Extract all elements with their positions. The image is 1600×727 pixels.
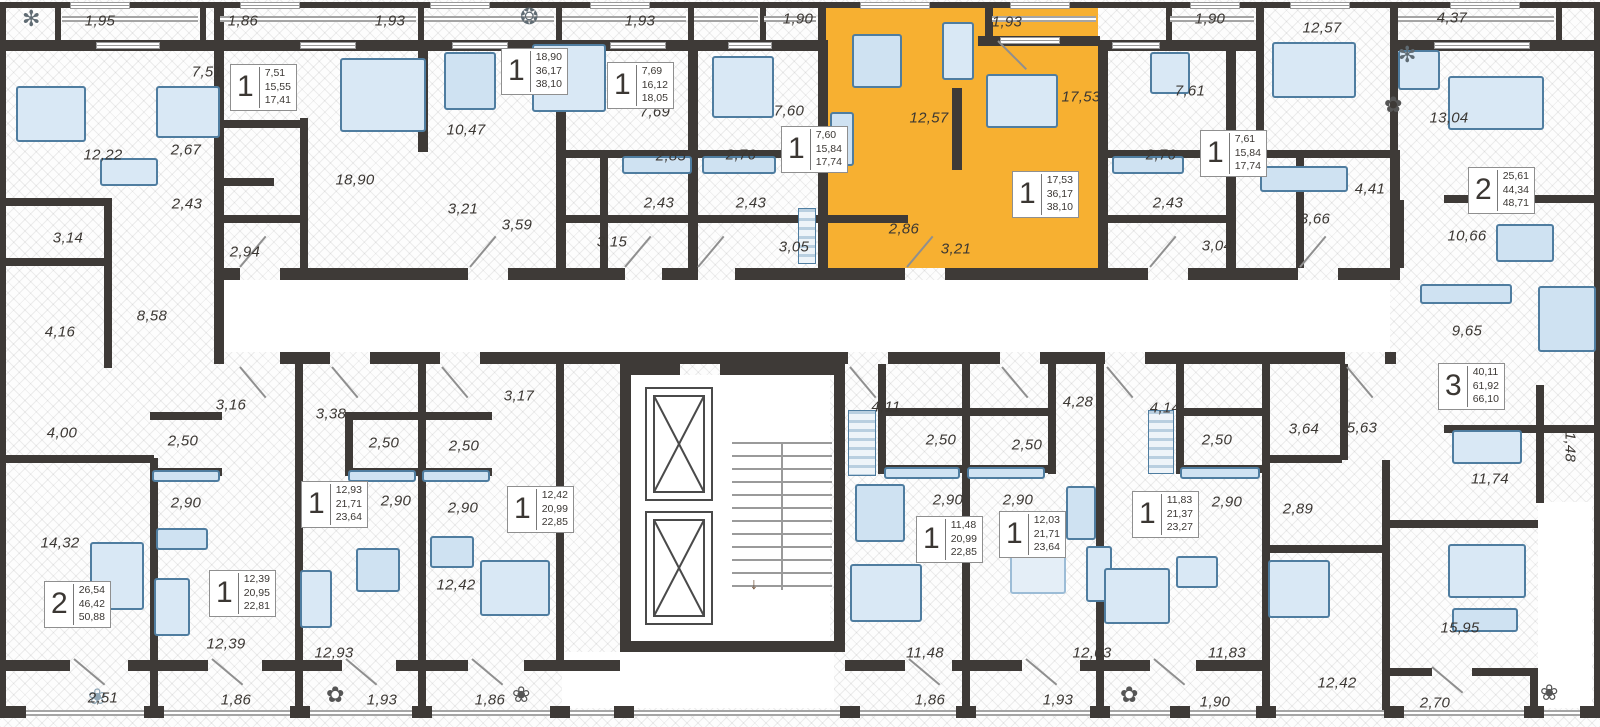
window	[1450, 2, 1520, 9]
window	[300, 42, 356, 49]
wall-segment	[1166, 40, 1258, 51]
unit-area-value: 20,99	[542, 503, 568, 517]
wall-segment	[1472, 668, 1530, 676]
room-area-label: 12,57	[1302, 20, 1341, 37]
room-area-label: 1,90	[1195, 11, 1225, 28]
room-area-label: 1,93	[992, 14, 1022, 31]
wall-segment	[224, 268, 240, 280]
unit-info-card: 226,5446,4250,88	[44, 581, 111, 628]
unit-areas: 11,4820,9922,85	[945, 519, 977, 560]
room-area-label: 11,48	[906, 645, 944, 662]
furniture	[154, 578, 190, 636]
room-area-label: 2,43	[736, 195, 766, 212]
window	[1010, 2, 1070, 9]
wall-stub	[956, 706, 976, 718]
room-area-label: 4,28	[1063, 394, 1093, 411]
wall-segment	[1188, 268, 1298, 280]
wall-segment	[1262, 455, 1342, 463]
wall-stub	[1524, 706, 1544, 718]
wall-segment	[1080, 660, 1150, 671]
window	[860, 2, 930, 9]
room-area-label: 2,51	[88, 690, 118, 707]
window	[96, 42, 160, 49]
furniture	[444, 52, 496, 110]
wall-segment	[214, 8, 224, 364]
unit-area-value: 22,85	[951, 546, 977, 560]
plant-icon: ✻	[22, 8, 40, 30]
wall-segment	[1166, 8, 1172, 42]
room-area-label: 10,47	[446, 122, 485, 139]
unit-info-card: 112,9321,7123,64	[301, 481, 368, 528]
furniture	[1448, 544, 1526, 598]
unit-info-card: 112,4220,9922,85	[507, 486, 574, 533]
wall-segment	[6, 455, 154, 463]
room-area-label: 17,53	[1061, 89, 1100, 106]
wall-segment	[878, 364, 886, 474]
wall-segment	[200, 8, 206, 42]
wall-segment	[1262, 364, 1270, 712]
room-area-label: 12,57	[909, 110, 948, 127]
room-area-label: 1,90	[783, 11, 813, 28]
room-area-label: 3,04	[1202, 238, 1232, 255]
wall-segment	[1108, 215, 1226, 223]
window	[1434, 42, 1530, 49]
room-area-label: 13,04	[1429, 110, 1468, 127]
wall-stub	[412, 706, 432, 718]
furniture	[1180, 467, 1260, 479]
room-area-label: 2,70	[1420, 695, 1450, 712]
wall-stub	[1384, 706, 1404, 718]
furniture	[942, 22, 974, 80]
unit-area-value: 11,83	[1167, 494, 1193, 508]
room-area-label: 12,03	[1072, 645, 1111, 662]
wall-segment	[600, 155, 608, 268]
wall-segment	[818, 8, 826, 42]
unit-info-card: 118,9036,1738,10	[501, 48, 568, 95]
furniture	[1066, 486, 1096, 540]
wall-segment	[6, 258, 110, 266]
unit-area-value: 12,03	[1034, 514, 1060, 528]
furniture	[430, 536, 474, 568]
unit-area-value: 7,61	[1235, 133, 1261, 147]
wall-stub	[614, 706, 634, 718]
room-area-label: 8,58	[137, 308, 167, 325]
window	[452, 42, 508, 49]
room-area-label: 3,21	[448, 201, 478, 218]
room-area-label: 3,64	[1289, 421, 1319, 438]
room-area-label: 12,39	[206, 636, 245, 653]
unit-area-value: 12,93	[336, 484, 362, 498]
wall-segment	[688, 40, 698, 268]
wall-segment	[128, 660, 208, 671]
wall-segment	[214, 120, 308, 128]
unit-rooms-count: 1	[216, 578, 233, 608]
room-area-label: 2,50	[1012, 437, 1042, 454]
unit-area-value: 12,39	[244, 573, 270, 587]
room-area-label: 2,43	[1153, 195, 1183, 212]
room-area-label: 9,65	[1452, 323, 1482, 340]
unit-areas: 7,6916,1218,05	[636, 65, 668, 106]
unit-area-value: 15,55	[265, 81, 291, 95]
unit-rooms-count: 1	[508, 56, 525, 86]
wall-segment	[6, 198, 110, 206]
room-area-label: 2,50	[369, 435, 399, 452]
room-area-label: 2,90	[171, 495, 201, 512]
window	[1290, 2, 1350, 9]
room-area-label: 15,95	[1440, 620, 1479, 637]
unit-rooms-count: 1	[614, 70, 631, 100]
furniture	[884, 467, 960, 479]
unit-areas: 12,3920,9522,81	[238, 573, 270, 614]
furniture	[1452, 430, 1522, 464]
furniture	[852, 34, 902, 88]
unit-area-value: 38,10	[1047, 201, 1073, 215]
wall-segment	[214, 215, 308, 223]
unit-area-value: 23,64	[1034, 541, 1060, 555]
room-area-label: 3,17	[504, 388, 534, 405]
room-area-label: 2,50	[449, 438, 479, 455]
wall-segment	[1536, 385, 1544, 503]
room-area-label: 1,86	[475, 692, 505, 709]
unit-areas: 7,5115,5517,41	[259, 67, 291, 108]
furniture	[1104, 568, 1170, 624]
furniture	[1420, 284, 1512, 304]
unit-area-value: 7,60	[816, 129, 842, 143]
wall-stub	[550, 706, 570, 718]
room-area-label: 4,16	[45, 324, 75, 341]
wall-segment	[556, 8, 562, 42]
unit-area-value: 61,92	[1473, 380, 1499, 394]
balcony-glazing	[1398, 16, 1554, 22]
furniture	[152, 470, 220, 482]
room-area-label: 1,86	[915, 692, 945, 709]
wall-stub	[1580, 706, 1600, 718]
wall-segment	[1396, 200, 1404, 268]
room-area-label: 2,76	[1146, 147, 1176, 164]
balcony-glazing	[62, 16, 198, 22]
unit-rooms-count: 1	[1139, 499, 1156, 529]
room-area-label: 2,94	[230, 244, 260, 261]
room-area-label: 11,74	[1471, 471, 1509, 488]
unit-area-value: 17,53	[1047, 174, 1073, 188]
wall-segment	[688, 8, 694, 42]
wall-segment	[300, 118, 308, 268]
unit-rooms-count: 1	[1006, 519, 1023, 549]
unit-info-card: 112,3920,9522,81	[209, 570, 276, 617]
room-area-label: 2,67	[171, 142, 201, 159]
unit-rooms-count: 1	[923, 524, 940, 554]
room-area-label: 1,93	[1043, 692, 1073, 709]
room-area-label: 2,76	[726, 147, 756, 164]
wall-segment	[1176, 408, 1262, 416]
unit-info-card: 225,6144,3448,71	[1468, 167, 1535, 214]
unit-area-value: 36,17	[1047, 188, 1073, 202]
room-area-label: 12,93	[314, 645, 353, 662]
unit-area-value: 66,10	[1473, 393, 1499, 407]
room-area-label: 3,15	[597, 234, 627, 251]
unit-area-value: 50,88	[79, 611, 105, 625]
unit-rooms-count: 3	[1445, 371, 1462, 401]
wall-stub	[1090, 706, 1110, 718]
room-area-label: 18,90	[335, 172, 374, 189]
unit-rooms-count: 2	[51, 589, 68, 619]
unit-area-value: 22,85	[542, 516, 568, 530]
room-area-label: 2,90	[933, 492, 963, 509]
unit-area-value: 23,27	[1167, 521, 1193, 535]
unit-rooms-count: 1	[514, 494, 531, 524]
wardrobe	[848, 410, 876, 476]
furniture	[1538, 286, 1596, 352]
wall-stub	[1256, 706, 1276, 718]
wall-segment	[952, 660, 1022, 671]
unit-info-card: 17,6015,8417,74	[781, 126, 848, 173]
floorplan-canvas: ✻❂✻❀✿❀✿❀✿ ↓ 1,951,861,931,931,901,931,90…	[0, 0, 1600, 727]
wall-segment	[150, 412, 222, 420]
unit-info-card: 17,6916,1218,05	[607, 62, 674, 109]
room-area-label: 2,90	[1212, 494, 1242, 511]
wall-segment	[1040, 352, 1105, 364]
wall-segment	[418, 8, 424, 42]
room-area-label: 2,90	[381, 493, 411, 510]
wall-segment	[1098, 40, 1108, 268]
plant-icon: ✿	[1120, 684, 1138, 706]
wall-segment	[945, 268, 1148, 280]
wall-segment	[1196, 660, 1262, 671]
staircase: ↓	[732, 442, 832, 590]
unit-area-value: 21,71	[1034, 528, 1060, 542]
wall-segment	[1382, 460, 1390, 712]
unit-area-value: 25,61	[1503, 170, 1529, 184]
unit-area-value: 44,34	[1503, 184, 1529, 198]
room-area-label: 7,60	[774, 103, 804, 120]
furniture	[986, 74, 1058, 128]
unit-area-value: 18,05	[642, 92, 668, 106]
wall-segment	[760, 8, 766, 42]
wall-segment	[662, 268, 698, 280]
window	[1112, 42, 1160, 49]
wall-segment	[845, 660, 905, 671]
furniture	[340, 58, 426, 132]
unit-info-card: 17,6115,8417,74	[1200, 130, 1267, 177]
wall-segment	[1340, 364, 1348, 460]
unit-areas: 11,8321,3723,27	[1161, 494, 1193, 535]
room-area-label: 3,38	[316, 406, 346, 423]
unit-info-card: 112,0321,7123,64	[999, 511, 1066, 558]
wall-stub	[1170, 706, 1190, 718]
unit-areas: 25,6144,3448,71	[1497, 170, 1529, 211]
plant-icon: ❀	[1540, 682, 1558, 704]
furniture	[1496, 224, 1554, 262]
room-area-label: 3,16	[216, 397, 246, 414]
wardrobe	[1148, 410, 1174, 474]
room-area-label: 10,66	[1447, 228, 1486, 245]
unit-area-value: 7,69	[642, 65, 668, 79]
furniture	[1176, 556, 1218, 588]
room-area-label: 1,93	[625, 13, 655, 30]
furniture	[16, 86, 86, 142]
wall-segment	[55, 8, 61, 42]
room-area-label: 3,21	[941, 241, 971, 258]
wall-segment	[280, 352, 330, 364]
plant-icon: ✿	[1384, 94, 1402, 116]
wall-segment	[1556, 8, 1562, 42]
wall-segment	[0, 660, 70, 671]
plant-icon: ✿	[326, 684, 344, 706]
room-area-label: 1,86	[228, 13, 258, 30]
wall-segment	[280, 268, 468, 280]
room-area-label: 12,42	[436, 577, 475, 594]
room-area-label: 4,37	[1437, 10, 1467, 27]
wall-segment	[965, 408, 1048, 416]
unit-area-value: 17,74	[816, 156, 842, 170]
window	[1000, 37, 1060, 44]
plant-icon: ❂	[520, 6, 538, 28]
room-area-label: 12,42	[1317, 675, 1356, 692]
unit-area-value: 21,71	[336, 498, 362, 512]
balcony-glazing	[694, 16, 758, 22]
window	[728, 42, 772, 49]
room-area-label: 1,86	[221, 692, 251, 709]
room-area-label: 2,50	[168, 433, 198, 450]
room-area-label: 12,22	[83, 147, 122, 164]
wall-stub	[290, 706, 310, 718]
unit-area-value: 15,84	[1235, 147, 1261, 161]
room-area-label: 3,59	[502, 217, 532, 234]
room-area-label: 1,93	[367, 692, 397, 709]
wall-segment	[952, 88, 962, 170]
wardrobe	[798, 208, 816, 264]
room-area-label: 4,41	[1355, 181, 1385, 198]
window	[1190, 2, 1240, 9]
wall-stub	[0, 706, 26, 718]
unit-area-value: 38,10	[536, 78, 562, 92]
furniture	[156, 86, 220, 138]
wall-segment	[370, 352, 440, 364]
unit-rooms-count: 1	[1207, 138, 1224, 168]
wall-segment	[345, 412, 418, 420]
unit-areas: 17,5336,1738,10	[1041, 174, 1073, 215]
unit-info-card: 111,4820,9922,85	[916, 516, 983, 563]
room-area-label: 11,83	[1208, 645, 1246, 662]
balcony-glazing	[8, 710, 1592, 716]
unit-rooms-count: 1	[308, 489, 325, 519]
wall-stub	[144, 706, 164, 718]
wall-segment	[262, 660, 342, 671]
furniture	[300, 570, 332, 628]
wall-segment	[1385, 352, 1396, 364]
wall-segment	[1390, 520, 1538, 528]
unit-areas: 40,1161,9266,10	[1467, 366, 1499, 407]
unit-info-card-selected: 117,5336,1738,10	[1012, 171, 1079, 218]
room-area-label: 1,48	[1562, 432, 1579, 462]
room-area-label: 5,63	[1347, 420, 1377, 437]
unit-area-value: 11,48	[951, 519, 977, 533]
open-area	[1538, 502, 1592, 708]
room-area-label: 1,93	[375, 13, 405, 30]
room-area-label: 3,66	[1300, 211, 1330, 228]
wall-segment	[1594, 2, 1600, 716]
furniture	[1268, 560, 1330, 618]
unit-rooms-count: 1	[788, 134, 805, 164]
unit-area-value: 40,11	[1473, 366, 1499, 380]
room-area-label: 3,05	[779, 239, 809, 256]
wall-segment	[888, 352, 1000, 364]
unit-area-value: 17,41	[265, 94, 291, 108]
furniture	[855, 484, 905, 542]
plant-icon: ❀	[512, 684, 530, 706]
unit-area-value: 12,42	[542, 489, 568, 503]
unit-area-value: 48,71	[1503, 197, 1529, 211]
unit-area-value: 17,74	[1235, 160, 1261, 174]
room-area-label: 7,51	[192, 64, 222, 81]
room-area-label: 2,90	[448, 500, 478, 517]
unit-rooms-count: 2	[1475, 175, 1492, 205]
room-area-label: 4,00	[47, 425, 77, 442]
plant-icon: ✻	[1398, 44, 1416, 66]
wall-segment	[214, 178, 274, 186]
wall-segment	[1390, 6, 1398, 152]
furniture	[850, 564, 922, 622]
unit-areas: 7,6015,8417,74	[810, 129, 842, 170]
window	[590, 2, 650, 9]
room-area-label: 4,11	[871, 399, 900, 416]
wall-segment	[104, 198, 112, 368]
unit-area-value: 46,42	[79, 598, 105, 612]
room-area-label: 2,90	[1003, 492, 1033, 509]
window	[240, 2, 300, 9]
room-area-label: 2,43	[644, 195, 674, 212]
wall-segment	[1048, 364, 1056, 474]
unit-area-value: 20,99	[951, 533, 977, 547]
wall-segment	[508, 268, 625, 280]
unit-info-card: 111,8321,3723,27	[1132, 491, 1199, 538]
furniture	[712, 56, 774, 118]
wall-segment	[1338, 268, 1396, 280]
unit-area-value: 21,37	[1167, 508, 1193, 522]
wall-stub	[840, 706, 860, 718]
window	[70, 2, 130, 9]
furniture	[1260, 166, 1348, 192]
unit-rooms-count: 1	[237, 72, 254, 102]
wall-segment	[1145, 352, 1345, 364]
room-area-label: 2,89	[1283, 501, 1313, 518]
room-area-label: 7,61	[1175, 83, 1205, 100]
window	[430, 2, 490, 9]
room-area-label: 14,32	[40, 535, 79, 552]
wall-segment	[735, 268, 905, 280]
unit-areas: 12,0321,7123,64	[1028, 514, 1060, 555]
open-area	[224, 280, 1390, 352]
unit-area-value: 16,12	[642, 79, 668, 93]
furniture	[1272, 42, 1356, 98]
unit-area-value: 18,90	[536, 51, 562, 65]
window	[610, 42, 666, 49]
unit-areas: 26,5446,4250,88	[73, 584, 105, 625]
unit-areas: 7,6115,8417,74	[1229, 133, 1261, 174]
unit-areas: 12,4220,9922,85	[536, 489, 568, 530]
furniture	[967, 467, 1045, 479]
room-area-label: 3,14	[53, 230, 83, 247]
room-area-label: 4,14	[1150, 400, 1180, 417]
furniture	[356, 548, 400, 592]
unit-area-value: 23,64	[336, 511, 362, 525]
wall-segment	[1176, 364, 1184, 474]
unit-areas: 12,9321,7123,64	[330, 484, 362, 525]
wall-segment	[1390, 668, 1432, 676]
unit-rooms-count: 1	[1019, 179, 1036, 209]
wall-segment	[396, 660, 468, 671]
unit-areas: 18,9036,1738,10	[530, 51, 562, 92]
